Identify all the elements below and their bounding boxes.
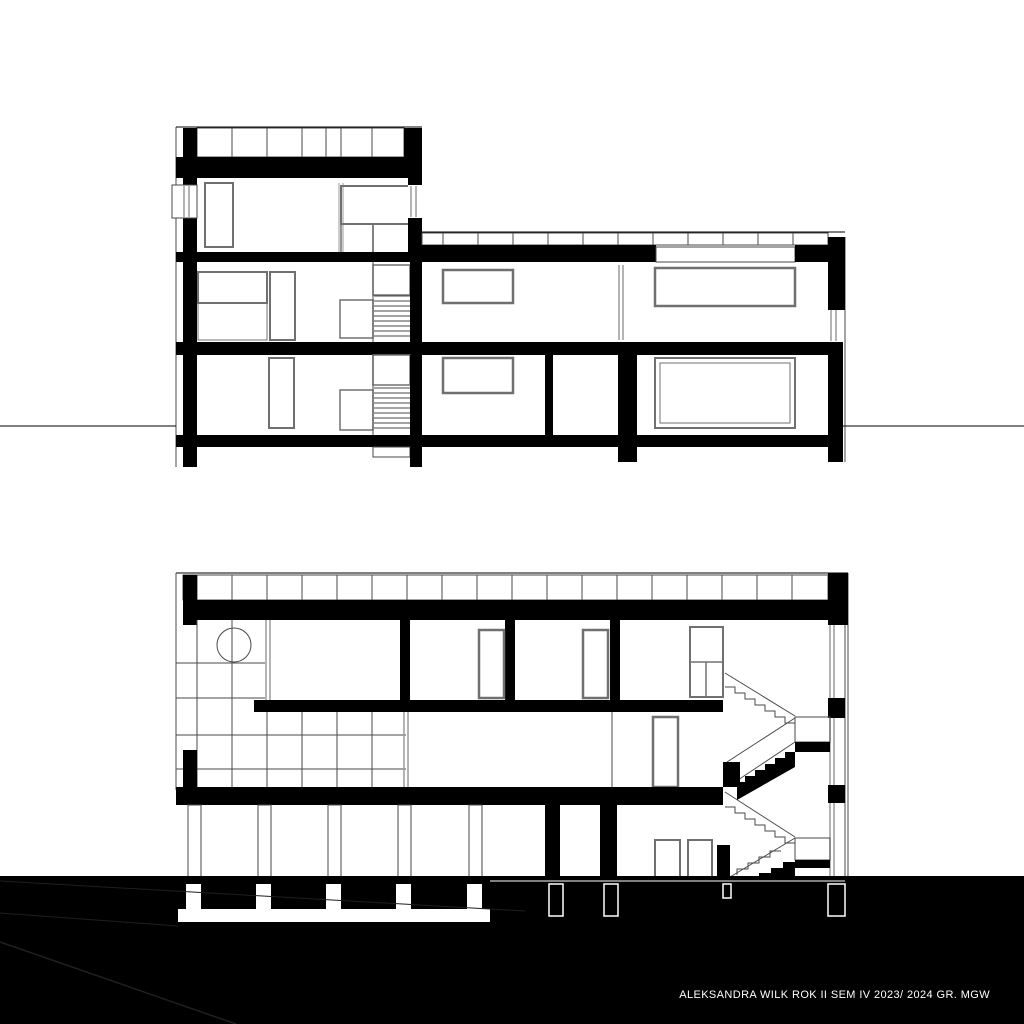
drawing-caption: ALEKSANDRA WILK ROK II SEM IV 2023/ 2024… <box>679 989 990 1001</box>
ground-terrain <box>0 876 1024 1024</box>
paper-background <box>0 0 1024 1024</box>
architectural-sections-canvas <box>0 0 1024 1024</box>
